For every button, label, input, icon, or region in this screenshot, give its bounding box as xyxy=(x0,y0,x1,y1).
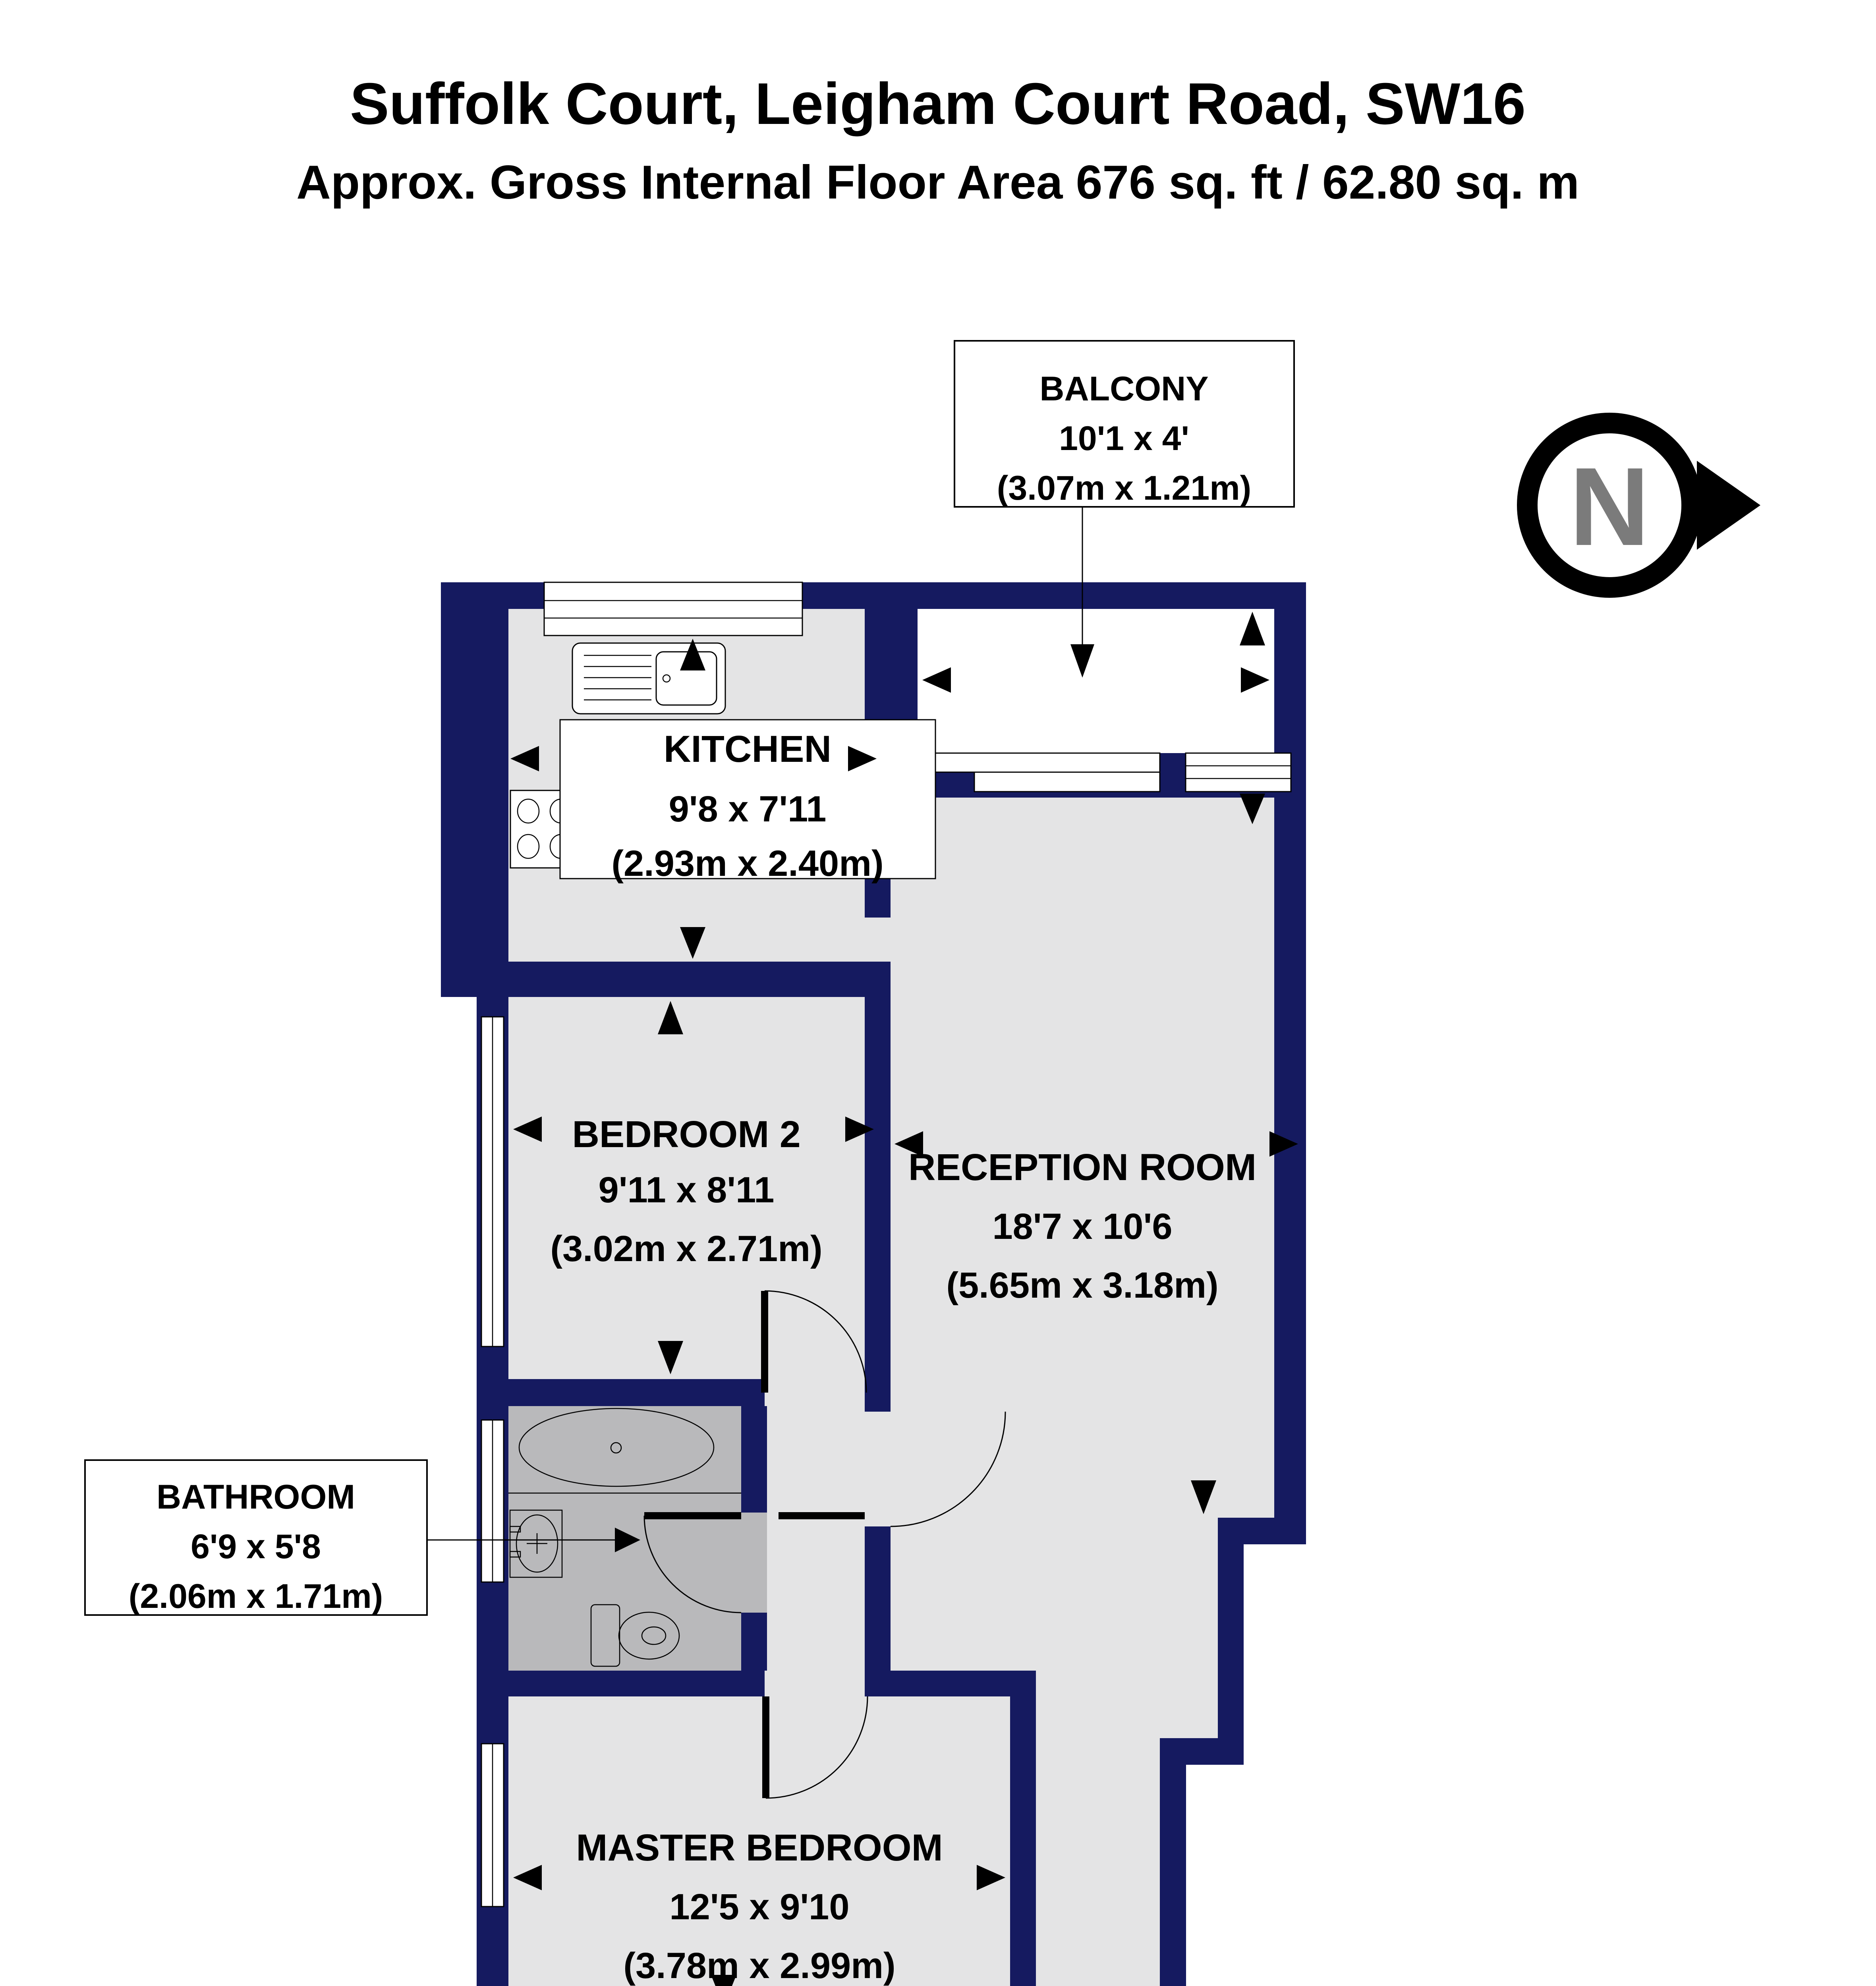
wall-step-2 xyxy=(1160,1738,1244,1765)
balcony-name: BALCONY xyxy=(1039,370,1208,408)
reception-dims-metric: (5.65m x 3.18m) xyxy=(946,1265,1218,1306)
wall-bedroom2-bottom xyxy=(477,1379,765,1406)
master-dims-imperial: 12'5 x 9'10 xyxy=(669,1887,849,1927)
balcony-window xyxy=(1186,753,1291,792)
kitchen-sink xyxy=(572,643,725,714)
bedroom2-dims-imperial: 9'11 x 8'11 xyxy=(599,1170,775,1210)
kitchen-window xyxy=(544,582,802,636)
wall-hall-right-upper xyxy=(865,997,891,1412)
wall-right xyxy=(1274,582,1306,1544)
north-arrow-icon xyxy=(1697,461,1760,550)
compass-letter: N xyxy=(1569,445,1650,569)
bathroom-window xyxy=(481,1420,504,1582)
wall-vestibule-right xyxy=(1160,1765,1186,1986)
bedroom2-dims-metric: (3.02m x 2.71m) xyxy=(550,1229,822,1269)
inner-hall-floor xyxy=(767,1406,865,1671)
wall-hall-right-lower xyxy=(865,1526,891,1671)
master-door-opening xyxy=(765,1671,865,1696)
wall-kitchen-left xyxy=(441,582,508,962)
kitchen-name: KITCHEN xyxy=(664,728,831,770)
master-dims-metric: (3.78m x 2.99m) xyxy=(623,1945,895,1986)
bedroom2-window xyxy=(481,1017,504,1347)
wall-master-right xyxy=(1010,1696,1036,1986)
north-compass-icon: N xyxy=(1527,423,1760,587)
kitchen-dims-imperial: 9'8 x 7'11 xyxy=(669,789,827,829)
wall-bathroom-right-upper xyxy=(741,1406,767,1513)
master-window xyxy=(481,1744,504,1907)
kitchen-dims-metric: (2.93m x 2.40m) xyxy=(611,843,883,884)
wall-right-lower xyxy=(1218,1544,1244,1765)
page-title: Suffolk Court, Leigham Court Road, SW16 xyxy=(350,71,1526,137)
floor-plan-page: Suffolk Court, Leigham Court Road, SW16 … xyxy=(0,0,1876,1986)
balcony-dims-imperial: 10'1 x 4' xyxy=(1059,419,1189,458)
balcony-dims-metric: (3.07m x 1.21m) xyxy=(997,469,1252,507)
reception-name: RECEPTION ROOM xyxy=(908,1146,1256,1188)
bedroom2-name: BEDROOM 2 xyxy=(572,1113,800,1155)
wall-balcony-top xyxy=(891,582,1306,609)
wall-master-top-left xyxy=(477,1671,765,1696)
reception-door-opening xyxy=(865,1412,891,1526)
master-name: MASTER BEDROOM xyxy=(576,1827,943,1869)
bathroom-dims-imperial: 6'9 x 5'8 xyxy=(191,1528,321,1566)
page-subtitle: Approx. Gross Internal Floor Area 676 sq… xyxy=(296,156,1579,209)
kitchen-door-opening xyxy=(865,918,891,962)
bathroom-door-opening xyxy=(741,1513,767,1613)
wall-bathroom-right-lower xyxy=(741,1613,767,1671)
balcony-floor xyxy=(918,609,1274,753)
reception-dims-imperial: 18'7 x 10'6 xyxy=(992,1206,1172,1247)
wall-master-top-right xyxy=(865,1671,1036,1696)
wall-step-1 xyxy=(1218,1518,1306,1544)
bathroom-dims-metric: (2.06m x 1.71m) xyxy=(129,1577,383,1615)
bedroom2-door-opening xyxy=(765,1379,865,1406)
bathroom-name: BATHROOM xyxy=(156,1478,355,1516)
